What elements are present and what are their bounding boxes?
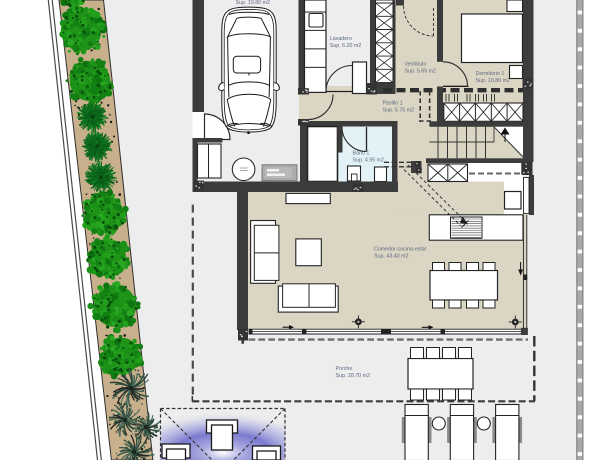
svg-text:Sup. 5.65 m2: Sup. 5.65 m2: [405, 69, 437, 75]
svg-text:Dormitorio 1: Dormitorio 1: [476, 71, 505, 77]
svg-text:Sup. 43.40 m2: Sup. 43.40 m2: [374, 254, 409, 260]
svg-text:Porche: Porche: [336, 366, 353, 372]
svg-text:Pasillo 1: Pasillo 1: [383, 101, 403, 107]
svg-text:Sup. 6.20 m2: Sup. 6.20 m2: [330, 43, 362, 49]
svg-text:Vestíbulo: Vestíbulo: [405, 62, 427, 68]
svg-text:Comedor-cocina-estar: Comedor-cocina-estar: [374, 247, 427, 253]
svg-text:Lavadero: Lavadero: [330, 36, 352, 42]
svg-text:Sup. 10.80 m2: Sup. 10.80 m2: [476, 78, 511, 84]
svg-text:Sup. 28.70 m2: Sup. 28.70 m2: [336, 373, 371, 379]
svg-text:Sup. 19.80 m2: Sup. 19.80 m2: [236, 0, 271, 6]
svg-text:Sup. 5.75 m2: Sup. 5.75 m2: [383, 108, 415, 114]
svg-text:Sup. 4.95 m2: Sup. 4.95 m2: [353, 158, 385, 164]
svg-text:Baño 1: Baño 1: [353, 151, 370, 157]
